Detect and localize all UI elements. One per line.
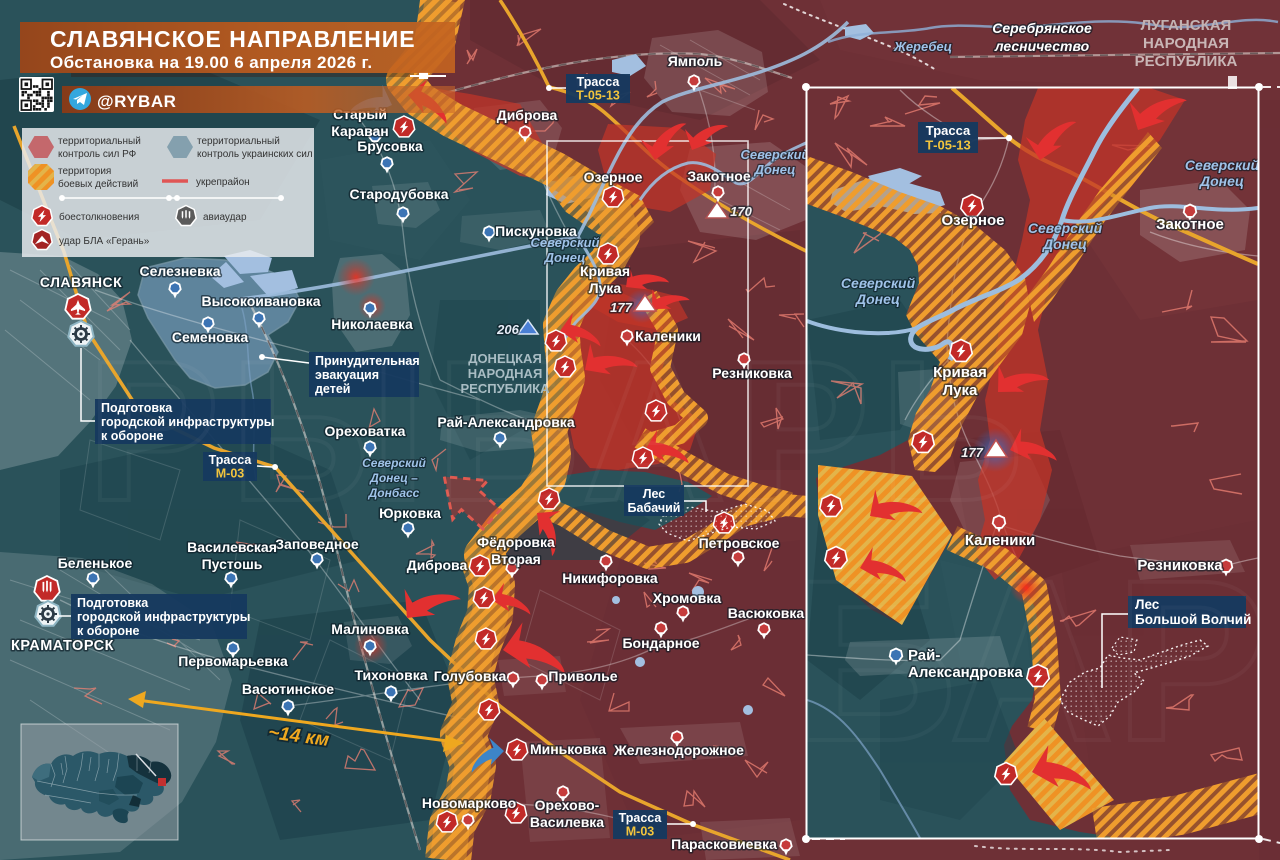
svg-text:Диброва: Диброва [497, 107, 558, 123]
svg-text:Северский: Северский [1185, 157, 1260, 173]
svg-text:контроль сил РФ: контроль сил РФ [58, 149, 137, 160]
svg-text:Северский: Северский [530, 235, 599, 250]
svg-text:боестолкновения: боестолкновения [59, 211, 139, 223]
svg-text:территориальный: территориальный [197, 136, 280, 147]
svg-text:Жеребец: Жеребец [893, 39, 952, 54]
svg-text:Северский: Северский [1028, 220, 1103, 236]
svg-text:Трасса: Трасса [619, 811, 663, 825]
svg-text:Стародубовка: Стародубовка [349, 186, 448, 202]
svg-text:Василевка: Василевка [530, 814, 604, 830]
svg-text:городской инфраструктуры: городской инфраструктуры [77, 610, 250, 624]
svg-text:177: 177 [610, 300, 632, 315]
svg-text:Донец: Донец [754, 162, 796, 177]
svg-text:Первомарьевка: Первомарьевка [178, 653, 288, 669]
svg-text:Брусовка: Брусовка [357, 138, 423, 154]
svg-text:Донец: Донец [1042, 236, 1087, 252]
svg-text:Лука: Лука [589, 280, 622, 296]
svg-text:СЛАВЯНСК: СЛАВЯНСК [40, 274, 122, 290]
svg-text:Пустошь: Пустошь [202, 556, 263, 572]
svg-text:Никифоровка: Никифоровка [562, 570, 658, 586]
svg-text:Ямполь: Ямполь [668, 53, 723, 69]
svg-text:территория: территория [58, 166, 111, 177]
svg-text:Миньковка: Миньковка [530, 741, 606, 757]
svg-text:Беленькое: Беленькое [58, 555, 133, 571]
svg-text:лесничество: лесничество [994, 38, 1090, 54]
svg-text:Т-05-13: Т-05-13 [925, 138, 971, 153]
svg-text:Кривая: Кривая [580, 263, 630, 279]
svg-text:Северский: Северский [740, 147, 809, 162]
svg-text:ЛУГАНСКАЯ: ЛУГАНСКАЯ [1141, 17, 1232, 34]
svg-text:Высокоивановка: Высокоивановка [202, 293, 321, 309]
svg-text:М-03: М-03 [626, 825, 655, 839]
svg-text:Т-05-13: Т-05-13 [576, 89, 620, 103]
svg-text:БАР: БАР [792, 532, 1268, 789]
svg-text:Озерное: Озерное [942, 212, 1005, 229]
svg-text:Васюковка: Васюковка [728, 605, 805, 621]
svg-text:удар БЛА «Герань»: удар БЛА «Герань» [59, 236, 150, 247]
svg-text:Селезневка: Селезневка [140, 263, 221, 279]
svg-text:Северский: Северский [841, 275, 916, 291]
svg-text:СЛАВЯНСКОЕ НАПРАВЛЕНИЕ: СЛАВЯНСКОЕ НАПРАВЛЕНИЕ [50, 26, 416, 52]
svg-text:Железнодорожное: Железнодорожное [613, 742, 744, 758]
svg-text:Подготовка: Подготовка [77, 596, 149, 610]
svg-text:Вторая: Вторая [491, 551, 541, 567]
svg-text:Тихоновка: Тихоновка [354, 667, 427, 683]
svg-text:боевых действий: боевых действий [58, 178, 138, 190]
svg-text:Донец: Донец [855, 291, 900, 307]
svg-text:Серебрянское: Серебрянское [992, 20, 1092, 36]
svg-text:170: 170 [730, 204, 752, 219]
svg-text:авиаудар: авиаудар [203, 212, 247, 223]
svg-text:территориальный: территориальный [58, 136, 141, 147]
svg-text:Диброва: Диброва [407, 557, 468, 573]
svg-text:Трасса: Трасса [926, 123, 971, 138]
svg-text:Закотное: Закотное [687, 168, 750, 184]
svg-text:Хромовка: Хромовка [653, 590, 722, 606]
svg-text:Бондарное: Бондарное [622, 635, 699, 651]
svg-text:Малиновка: Малиновка [331, 621, 409, 637]
svg-text:Васютинское: Васютинское [242, 681, 334, 697]
svg-text:Караван: Караван [331, 123, 389, 139]
svg-text:Орехово-: Орехово- [535, 797, 600, 813]
svg-text:КРАМАТОРСК: КРАМАТОРСК [11, 638, 114, 654]
svg-text:контроль украинских сил: контроль украинских сил [197, 149, 313, 160]
svg-text:Донец: Донец [1199, 173, 1244, 189]
svg-text:Приволье: Приволье [548, 668, 617, 684]
svg-text:Трасса: Трасса [577, 75, 621, 89]
svg-text:укрепрайон: укрепрайон [196, 177, 250, 188]
svg-text:РЫБАРЬ: РЫБАРЬ [87, 320, 1034, 543]
svg-text:к обороне: к обороне [77, 624, 140, 638]
svg-text:@RYBAR: @RYBAR [97, 92, 176, 111]
svg-text:Обстановка на 19.00 6 апреля 2: Обстановка на 19.00 6 апреля 2026 г. [50, 53, 372, 72]
svg-text:РЕСПУБЛИКА: РЕСПУБЛИКА [1135, 53, 1238, 70]
svg-text:Парасковиевка: Парасковиевка [671, 836, 777, 852]
svg-text:НАРОДНАЯ: НАРОДНАЯ [1143, 35, 1229, 52]
svg-text:Озерное: Озерное [584, 169, 643, 185]
svg-text:Донец: Донец [544, 250, 586, 265]
svg-text:Новомарково: Новомарково [422, 795, 516, 811]
svg-text:Закотное: Закотное [1156, 216, 1224, 233]
svg-text:Голубовка: Голубовка [434, 668, 507, 684]
